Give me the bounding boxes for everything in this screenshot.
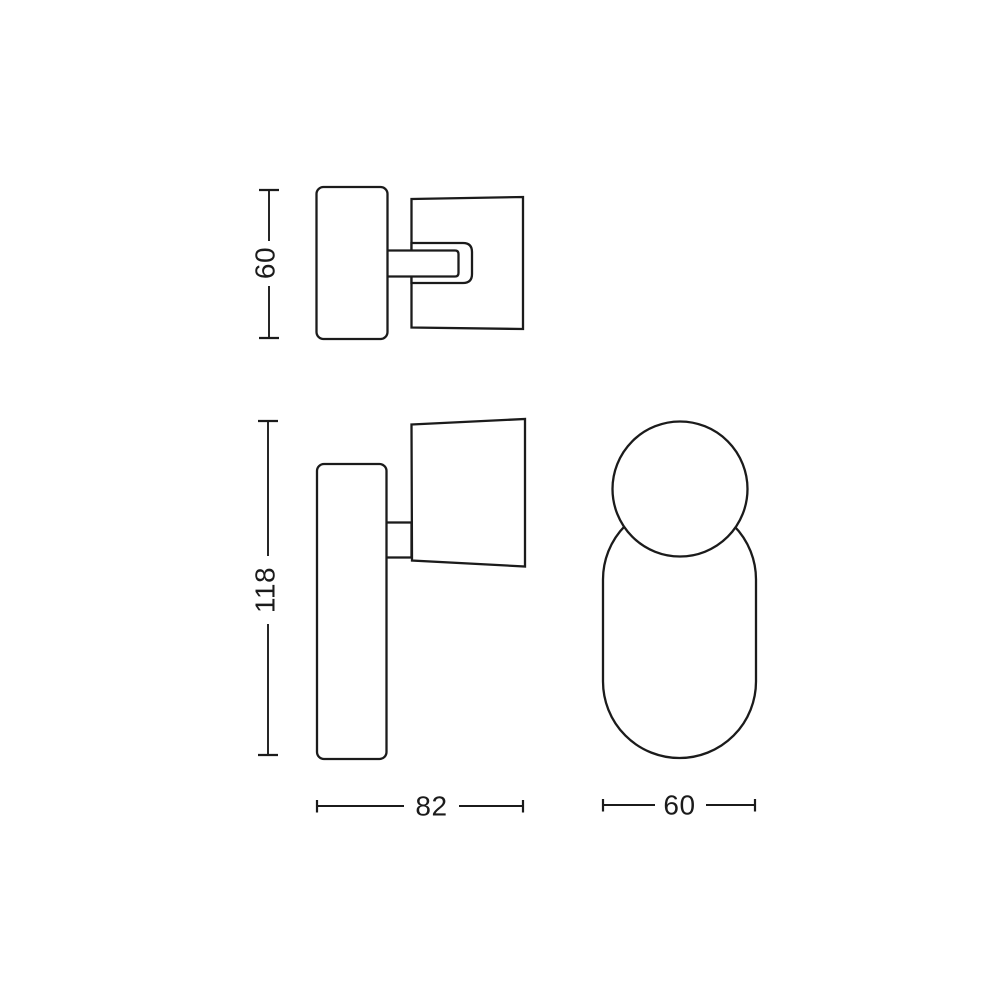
- mounting-arm-side-outline: [387, 251, 459, 277]
- mounting-arm-front-outline: [384, 523, 412, 558]
- top-view: [603, 422, 756, 759]
- dim-total-width: 82: [317, 791, 523, 822]
- spotlight-dimension-drawing: 60 118 82: [0, 0, 1000, 1000]
- spot-head-front-outline: [412, 419, 526, 567]
- dim-total-height-label: 118: [250, 567, 281, 613]
- dim-base-width: 60: [603, 790, 755, 821]
- dim-total-width-label: 82: [415, 791, 447, 822]
- head-circle-outline: [613, 422, 748, 557]
- dim-total-height: 118: [250, 421, 281, 755]
- dimension-drawing-page: 60 118 82: [0, 0, 1000, 1000]
- body-front-outline: [317, 464, 387, 759]
- front-view: [317, 419, 525, 759]
- wall-plate-side-outline: [317, 187, 388, 339]
- dim-base-width-label: 60: [663, 790, 695, 821]
- dim-plate-height-label: 60: [250, 247, 281, 279]
- side-view: [317, 187, 524, 339]
- dim-plate-height: 60: [250, 190, 281, 338]
